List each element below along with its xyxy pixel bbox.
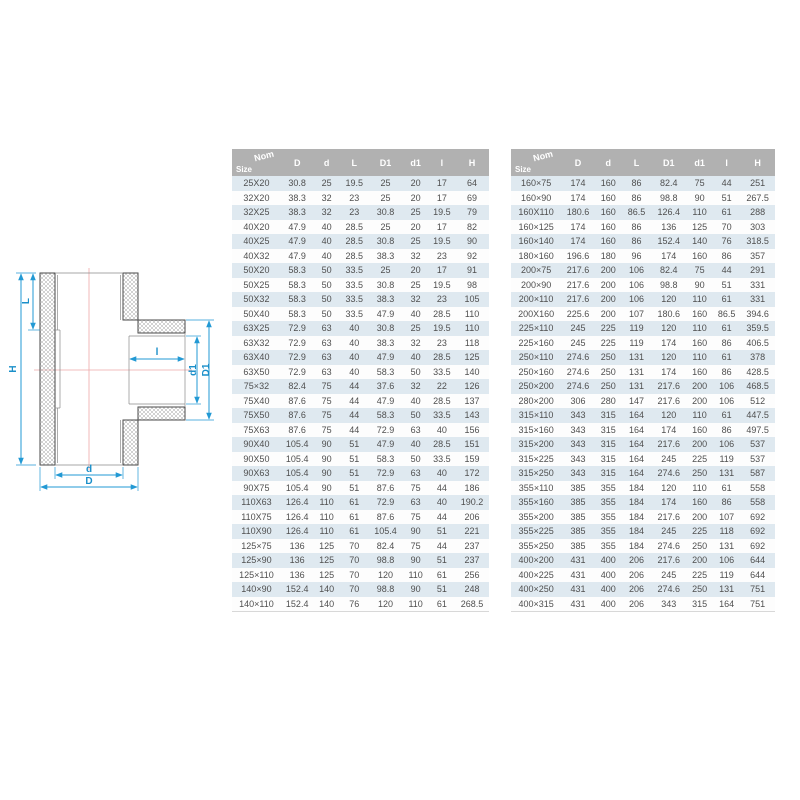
cell: 110 [313, 510, 339, 525]
cell: 288 [740, 205, 775, 220]
cell: 131 [713, 466, 740, 481]
cell: 32 [402, 292, 428, 307]
cell: 131 [622, 365, 652, 380]
cell: 61 [713, 321, 740, 336]
cell: 172 [455, 466, 489, 481]
cell: 47.9 [369, 394, 403, 409]
cell: 206 [455, 510, 489, 525]
table-row: 315×250343315164274.6250131587 [511, 466, 775, 481]
cell: 90 [455, 234, 489, 249]
cell: 120 [651, 292, 686, 307]
cell: 125×110 [232, 568, 281, 583]
cell: 40 [340, 365, 369, 380]
cell: 136 [281, 539, 314, 554]
cell: 164 [622, 466, 652, 481]
cell: 105.4 [281, 452, 314, 467]
cell: 280 [595, 394, 622, 409]
cell: 44 [429, 510, 455, 525]
cell: 343 [561, 423, 594, 438]
cell: 245 [651, 568, 686, 583]
cell: 61 [713, 350, 740, 365]
cell: 106 [622, 292, 652, 307]
cell: 50 [402, 365, 428, 380]
cell: 126 [455, 379, 489, 394]
cell: 61 [340, 524, 369, 539]
cell: 61 [713, 408, 740, 423]
cell: 50 [313, 292, 339, 307]
cell: 50X25 [232, 278, 281, 293]
cell: 75 [686, 176, 713, 191]
cell: 250×200 [511, 379, 561, 394]
cell: 25 [402, 205, 428, 220]
cell: 315 [686, 597, 713, 612]
cell: 58.3 [369, 452, 403, 467]
cell: 251 [740, 176, 775, 191]
cell: 644 [740, 568, 775, 583]
cell: 558 [740, 495, 775, 510]
table-row: 63X3272.9634038.33223118 [232, 336, 489, 351]
right-wall-upper [123, 273, 138, 320]
cell: 58.3 [369, 365, 403, 380]
cell: 40 [340, 321, 369, 336]
table-row: 50X4058.35033.547.94028.5110 [232, 307, 489, 322]
socket-detail-lines [55, 273, 185, 465]
cell: 125×90 [232, 553, 281, 568]
cell: 357 [740, 249, 775, 264]
cell: 225×160 [511, 336, 561, 351]
column-header-L: L [622, 149, 652, 176]
cell: 40 [313, 249, 339, 264]
cell: 44 [340, 394, 369, 409]
cell: 63 [313, 336, 339, 351]
cell: 38.3 [281, 191, 314, 206]
cell: 72.9 [369, 466, 403, 481]
cell: 38.3 [369, 292, 403, 307]
cell: 40 [429, 466, 455, 481]
cell: 355×200 [511, 510, 561, 525]
column-header-L: L [340, 149, 369, 176]
cell: 106 [713, 394, 740, 409]
label-d1: d1 [188, 364, 199, 376]
cell: 118 [455, 336, 489, 351]
cell: 63 [402, 495, 428, 510]
table-row: 225×16024522511917416086406.5 [511, 336, 775, 351]
column-header-l: l [713, 149, 740, 176]
label-d: d [86, 464, 92, 475]
table-row: 180×160196.61809617416086357 [511, 249, 775, 264]
cell: 400×250 [511, 582, 561, 597]
cell: 25 [369, 263, 403, 278]
cell: 315 [595, 423, 622, 438]
cell: 250 [686, 539, 713, 554]
cell: 63 [313, 365, 339, 380]
cell: 140 [686, 234, 713, 249]
cell: 51 [340, 466, 369, 481]
cell: 160 [595, 176, 622, 191]
cell: 151 [455, 437, 489, 452]
cell: 33.5 [340, 292, 369, 307]
cell: 644 [740, 553, 775, 568]
left-wall [40, 273, 55, 465]
cell: 110 [686, 350, 713, 365]
cell: 400 [595, 568, 622, 583]
cell: 47.9 [369, 307, 403, 322]
cell: 315 [595, 452, 622, 467]
column-header-D: D [561, 149, 594, 176]
cell: 69 [455, 191, 489, 206]
cell: 160 [686, 423, 713, 438]
cell: 174 [561, 191, 594, 206]
cell: 30.8 [369, 234, 403, 249]
cell: 19.5 [429, 234, 455, 249]
cell: 86 [622, 234, 652, 249]
cell: 217.6 [561, 292, 594, 307]
cell: 20 [402, 220, 428, 235]
cell: 355 [595, 510, 622, 525]
cell: 160X110 [511, 205, 561, 220]
cell: 225 [686, 568, 713, 583]
cell: 17 [429, 191, 455, 206]
cell: 19.5 [429, 205, 455, 220]
cell: 343 [651, 597, 686, 612]
table-row: 90X63105.4905172.96340172 [232, 466, 489, 481]
cell: 200 [595, 292, 622, 307]
cell: 180×160 [511, 249, 561, 264]
cell: 72.9 [281, 336, 314, 351]
cell: 160 [686, 336, 713, 351]
cell: 200X160 [511, 307, 561, 322]
cell: 406.5 [740, 336, 775, 351]
cell: 61 [429, 568, 455, 583]
column-header-D1: D1 [369, 149, 403, 176]
cell: 44 [713, 176, 740, 191]
cell: 217.6 [651, 394, 686, 409]
cell: 136 [281, 568, 314, 583]
cell: 33.5 [429, 452, 455, 467]
cell: 343 [561, 466, 594, 481]
tee-fitting-diagram: H L D1 d1 l d D [0, 248, 230, 500]
cell: 140×110 [232, 597, 281, 612]
cell: 196.6 [561, 249, 594, 264]
table-row: 75×3282.4754437.63222126 [232, 379, 489, 394]
cell: 47.9 [281, 234, 314, 249]
column-header-H: H [740, 149, 775, 176]
cell: 40 [429, 495, 455, 510]
cell: 152.4 [281, 597, 314, 612]
cell: 751 [740, 597, 775, 612]
cell: 250 [686, 466, 713, 481]
cell: 61 [340, 510, 369, 525]
cell: 245 [561, 336, 594, 351]
cell: 58.3 [281, 307, 314, 322]
cell: 86 [713, 249, 740, 264]
cell: 90 [402, 524, 428, 539]
table-row: 160×1251741608613612570303 [511, 220, 775, 235]
cell: 47.9 [281, 249, 314, 264]
cell: 32 [313, 191, 339, 206]
cell: 110 [686, 321, 713, 336]
column-header-D: D [281, 149, 314, 176]
cell: 225.6 [561, 307, 594, 322]
cell: 51 [429, 524, 455, 539]
cell: 431 [561, 597, 594, 612]
cell: 126.4 [651, 205, 686, 220]
cell: 90X50 [232, 452, 281, 467]
cell: 217.6 [561, 263, 594, 278]
cell: 86.5 [622, 205, 652, 220]
cell: 63 [313, 350, 339, 365]
cell: 90 [686, 278, 713, 293]
cell: 225 [686, 524, 713, 539]
cell: 90 [313, 466, 339, 481]
cell: 131 [713, 582, 740, 597]
cell: 110 [686, 481, 713, 496]
cell: 33.5 [429, 365, 455, 380]
cell: 225 [686, 452, 713, 467]
table-row: 160X110180.616086.5126.411061288 [511, 205, 775, 220]
cell: 274.6 [561, 365, 594, 380]
spec-sheet-page: H L D1 d1 l d D NomSizeDdLD1d1lH25X2030.… [0, 0, 800, 800]
cell: 174 [651, 423, 686, 438]
table-row: 75X4087.6754447.94028.5137 [232, 394, 489, 409]
cell: 63X25 [232, 321, 281, 336]
table-row: 90X50105.4905158.35033.5159 [232, 452, 489, 467]
cell: 385 [561, 524, 594, 539]
cell: 87.6 [281, 408, 314, 423]
cell: 110 [313, 495, 339, 510]
cell: 160×125 [511, 220, 561, 235]
cell: 152.4 [281, 582, 314, 597]
cell: 400 [595, 582, 622, 597]
cell: 160 [686, 495, 713, 510]
cell: 110 [455, 321, 489, 336]
size-header-label: Size [515, 165, 531, 174]
cell: 468.5 [740, 379, 775, 394]
cell: 90X75 [232, 481, 281, 496]
cell: 32 [402, 379, 428, 394]
cell: 184 [622, 510, 652, 525]
cell: 50 [313, 307, 339, 322]
cell: 86 [622, 220, 652, 235]
cell: 44 [429, 481, 455, 496]
cell: 40 [313, 234, 339, 249]
cell: 315×225 [511, 452, 561, 467]
column-header-l: l [429, 149, 455, 176]
cell: 51 [340, 481, 369, 496]
cell: 400 [595, 597, 622, 612]
cell: 200 [595, 278, 622, 293]
cell: 63X50 [232, 365, 281, 380]
cell: 47.9 [369, 350, 403, 365]
cell: 137 [455, 394, 489, 409]
cell: 125 [313, 539, 339, 554]
cell: 385 [561, 481, 594, 496]
label-l: l [156, 347, 159, 358]
cell: 61 [713, 292, 740, 307]
cell: 110 [686, 292, 713, 307]
cell: 558 [740, 481, 775, 496]
cell: 64 [455, 176, 489, 191]
cell: 23 [429, 292, 455, 307]
table-row: 125×1101361257012011061256 [232, 568, 489, 583]
table-row: 25X2030.82519.525201764 [232, 176, 489, 191]
cell: 38.3 [369, 249, 403, 264]
cell: 32X20 [232, 191, 281, 206]
cell: 40X32 [232, 249, 281, 264]
cell: 160×140 [511, 234, 561, 249]
cell: 431 [561, 553, 594, 568]
cell: 38.3 [281, 205, 314, 220]
cell: 20 [402, 191, 428, 206]
cell: 105.4 [281, 437, 314, 452]
cell: 131 [622, 379, 652, 394]
cell: 51 [713, 278, 740, 293]
cell: 70 [340, 582, 369, 597]
cell: 17 [429, 220, 455, 235]
table-row: 90X40105.4905147.94028.5151 [232, 437, 489, 452]
table-row: 125×901361257098.89051237 [232, 553, 489, 568]
cell: 63X40 [232, 350, 281, 365]
cell: 30.8 [369, 205, 403, 220]
cell: 75X40 [232, 394, 281, 409]
cell: 98.8 [651, 191, 686, 206]
cell: 217.6 [651, 437, 686, 452]
cell: 126.4 [281, 524, 314, 539]
cell: 180 [595, 249, 622, 264]
cell: 250 [595, 365, 622, 380]
label-H: H [8, 365, 19, 372]
cell: 72.9 [369, 423, 403, 438]
cell: 221 [455, 524, 489, 539]
column-header-d: d [313, 149, 339, 176]
cell: 61 [713, 205, 740, 220]
cell: 174 [561, 234, 594, 249]
cell: 180.6 [651, 307, 686, 322]
cell: 160×75 [511, 176, 561, 191]
header-row: NomSizeDdLD1d1lH [232, 149, 489, 176]
cell: 40 [313, 220, 339, 235]
cell: 110 [402, 568, 428, 583]
cell: 63 [402, 466, 428, 481]
cell: 110 [313, 524, 339, 539]
cell: 174 [651, 365, 686, 380]
cell: 87.6 [281, 394, 314, 409]
cell: 91 [455, 263, 489, 278]
cell: 274.6 [651, 466, 686, 481]
cell: 50 [313, 263, 339, 278]
cell: 217.6 [561, 278, 594, 293]
cell: 174 [651, 249, 686, 264]
cell: 76 [713, 234, 740, 249]
cell: 107 [713, 510, 740, 525]
cell: 355×160 [511, 495, 561, 510]
cell: 385 [561, 510, 594, 525]
cell: 343 [561, 408, 594, 423]
cell: 50X40 [232, 307, 281, 322]
cell: 25 [369, 191, 403, 206]
cell: 120 [651, 408, 686, 423]
cell: 28.5 [429, 307, 455, 322]
cell: 315×250 [511, 466, 561, 481]
cell: 206 [622, 553, 652, 568]
cell: 174 [561, 176, 594, 191]
cell: 359.5 [740, 321, 775, 336]
cell: 86 [622, 191, 652, 206]
cell: 105.4 [281, 481, 314, 496]
cell: 174 [651, 495, 686, 510]
table-row: 400×250431400206274.6250131751 [511, 582, 775, 597]
table-row: 110X90126.411061105.49051221 [232, 524, 489, 539]
table-row: 355×225385355184245225118692 [511, 524, 775, 539]
cell: 587 [740, 466, 775, 481]
cell: 164 [713, 597, 740, 612]
cell: 164 [622, 452, 652, 467]
cell: 61 [429, 597, 455, 612]
cell: 33.5 [340, 307, 369, 322]
cell: 140 [455, 365, 489, 380]
cell: 200 [686, 510, 713, 525]
table-row: 225×11024522511912011061359.5 [511, 321, 775, 336]
cell: 32 [402, 249, 428, 264]
cell: 25X20 [232, 176, 281, 191]
cell: 63 [402, 423, 428, 438]
table-row: 160×14017416086152.414076318.5 [511, 234, 775, 249]
cell: 140×90 [232, 582, 281, 597]
cell: 160 [686, 249, 713, 264]
cell: 28.5 [340, 249, 369, 264]
cell: 40X25 [232, 234, 281, 249]
cell: 125 [313, 568, 339, 583]
cell: 225 [595, 336, 622, 351]
table-row: 63X4072.9634047.94028.5125 [232, 350, 489, 365]
cell: 160 [595, 205, 622, 220]
cell: 355×250 [511, 539, 561, 554]
table-row: 160×901741608698.89051267.5 [511, 191, 775, 206]
cell: 23 [429, 249, 455, 264]
cell: 38.3 [369, 336, 403, 351]
cell: 61 [713, 481, 740, 496]
cell: 51 [429, 582, 455, 597]
cell: 98.8 [651, 278, 686, 293]
cell: 86 [713, 365, 740, 380]
cell: 110 [686, 408, 713, 423]
cell: 200×90 [511, 278, 561, 293]
cell: 76 [340, 597, 369, 612]
cell: 106 [713, 553, 740, 568]
cell: 119 [713, 568, 740, 583]
label-D: D [85, 476, 92, 487]
cell: 90 [686, 191, 713, 206]
cell: 33.5 [429, 408, 455, 423]
cell: 110 [455, 307, 489, 322]
cell: 131 [713, 539, 740, 554]
cell: 120 [369, 568, 403, 583]
cell: 385 [561, 539, 594, 554]
cell: 250×160 [511, 365, 561, 380]
cell: 125 [313, 553, 339, 568]
cell: 28.5 [340, 234, 369, 249]
cell: 70 [340, 568, 369, 583]
cell: 143 [455, 408, 489, 423]
cell: 51 [340, 437, 369, 452]
cell: 30.8 [369, 321, 403, 336]
cell: 250 [595, 350, 622, 365]
cell: 63X32 [232, 336, 281, 351]
cell: 86 [713, 495, 740, 510]
cell: 250 [686, 582, 713, 597]
cell: 86.5 [713, 307, 740, 322]
cell: 280×200 [511, 394, 561, 409]
